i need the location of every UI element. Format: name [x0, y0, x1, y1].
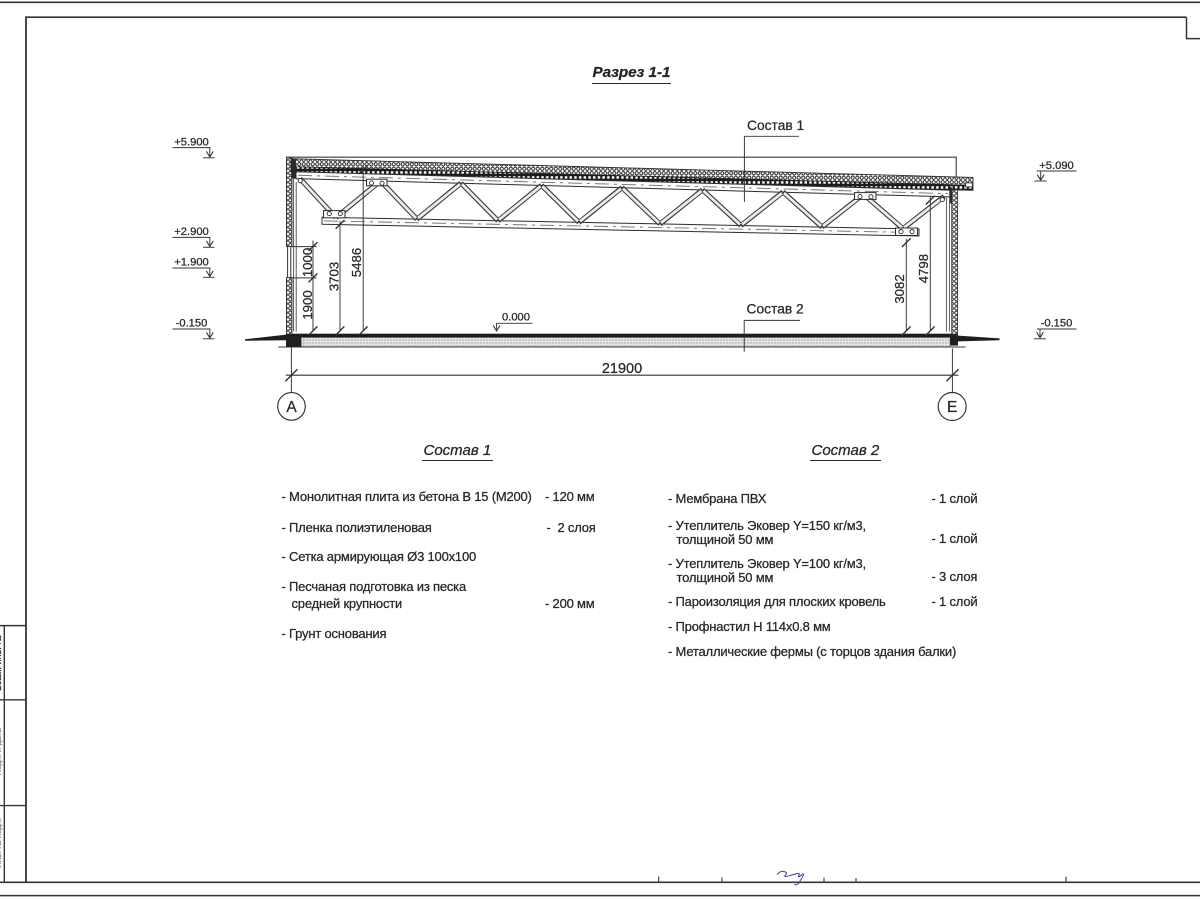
svg-text:1900: 1900: [300, 290, 315, 319]
svg-text:3703: 3703: [327, 262, 342, 291]
svg-text:1000: 1000: [300, 248, 315, 277]
svg-text:Подп. и дата: Подп. и дата: [0, 728, 3, 776]
svg-text:-0.150: -0.150: [1041, 318, 1073, 330]
svg-text:+5.900: +5.900: [174, 136, 209, 148]
svg-text:-0.150: -0.150: [176, 318, 208, 330]
svg-text:Взам. инв. №: Взам. инв. №: [0, 635, 3, 691]
svg-text:Состав 2: Состав 2: [747, 301, 804, 316]
svg-text:+1.900: +1.900: [174, 257, 209, 269]
svg-text:5486: 5486: [349, 248, 364, 277]
svg-text:21900: 21900: [602, 361, 642, 377]
svg-text:Состав 1: Состав 1: [747, 118, 804, 133]
svg-text:4798: 4798: [916, 254, 931, 283]
svg-text:А: А: [286, 399, 297, 416]
svg-text:+2.900: +2.900: [174, 226, 209, 238]
svg-text:0.000: 0.000: [502, 312, 530, 324]
svg-text:3082: 3082: [892, 274, 907, 303]
svg-text:Инв. № подл.: Инв. № подл.: [0, 818, 3, 868]
svg-text:+5.090: +5.090: [1039, 160, 1074, 172]
svg-text:Е: Е: [947, 399, 957, 416]
